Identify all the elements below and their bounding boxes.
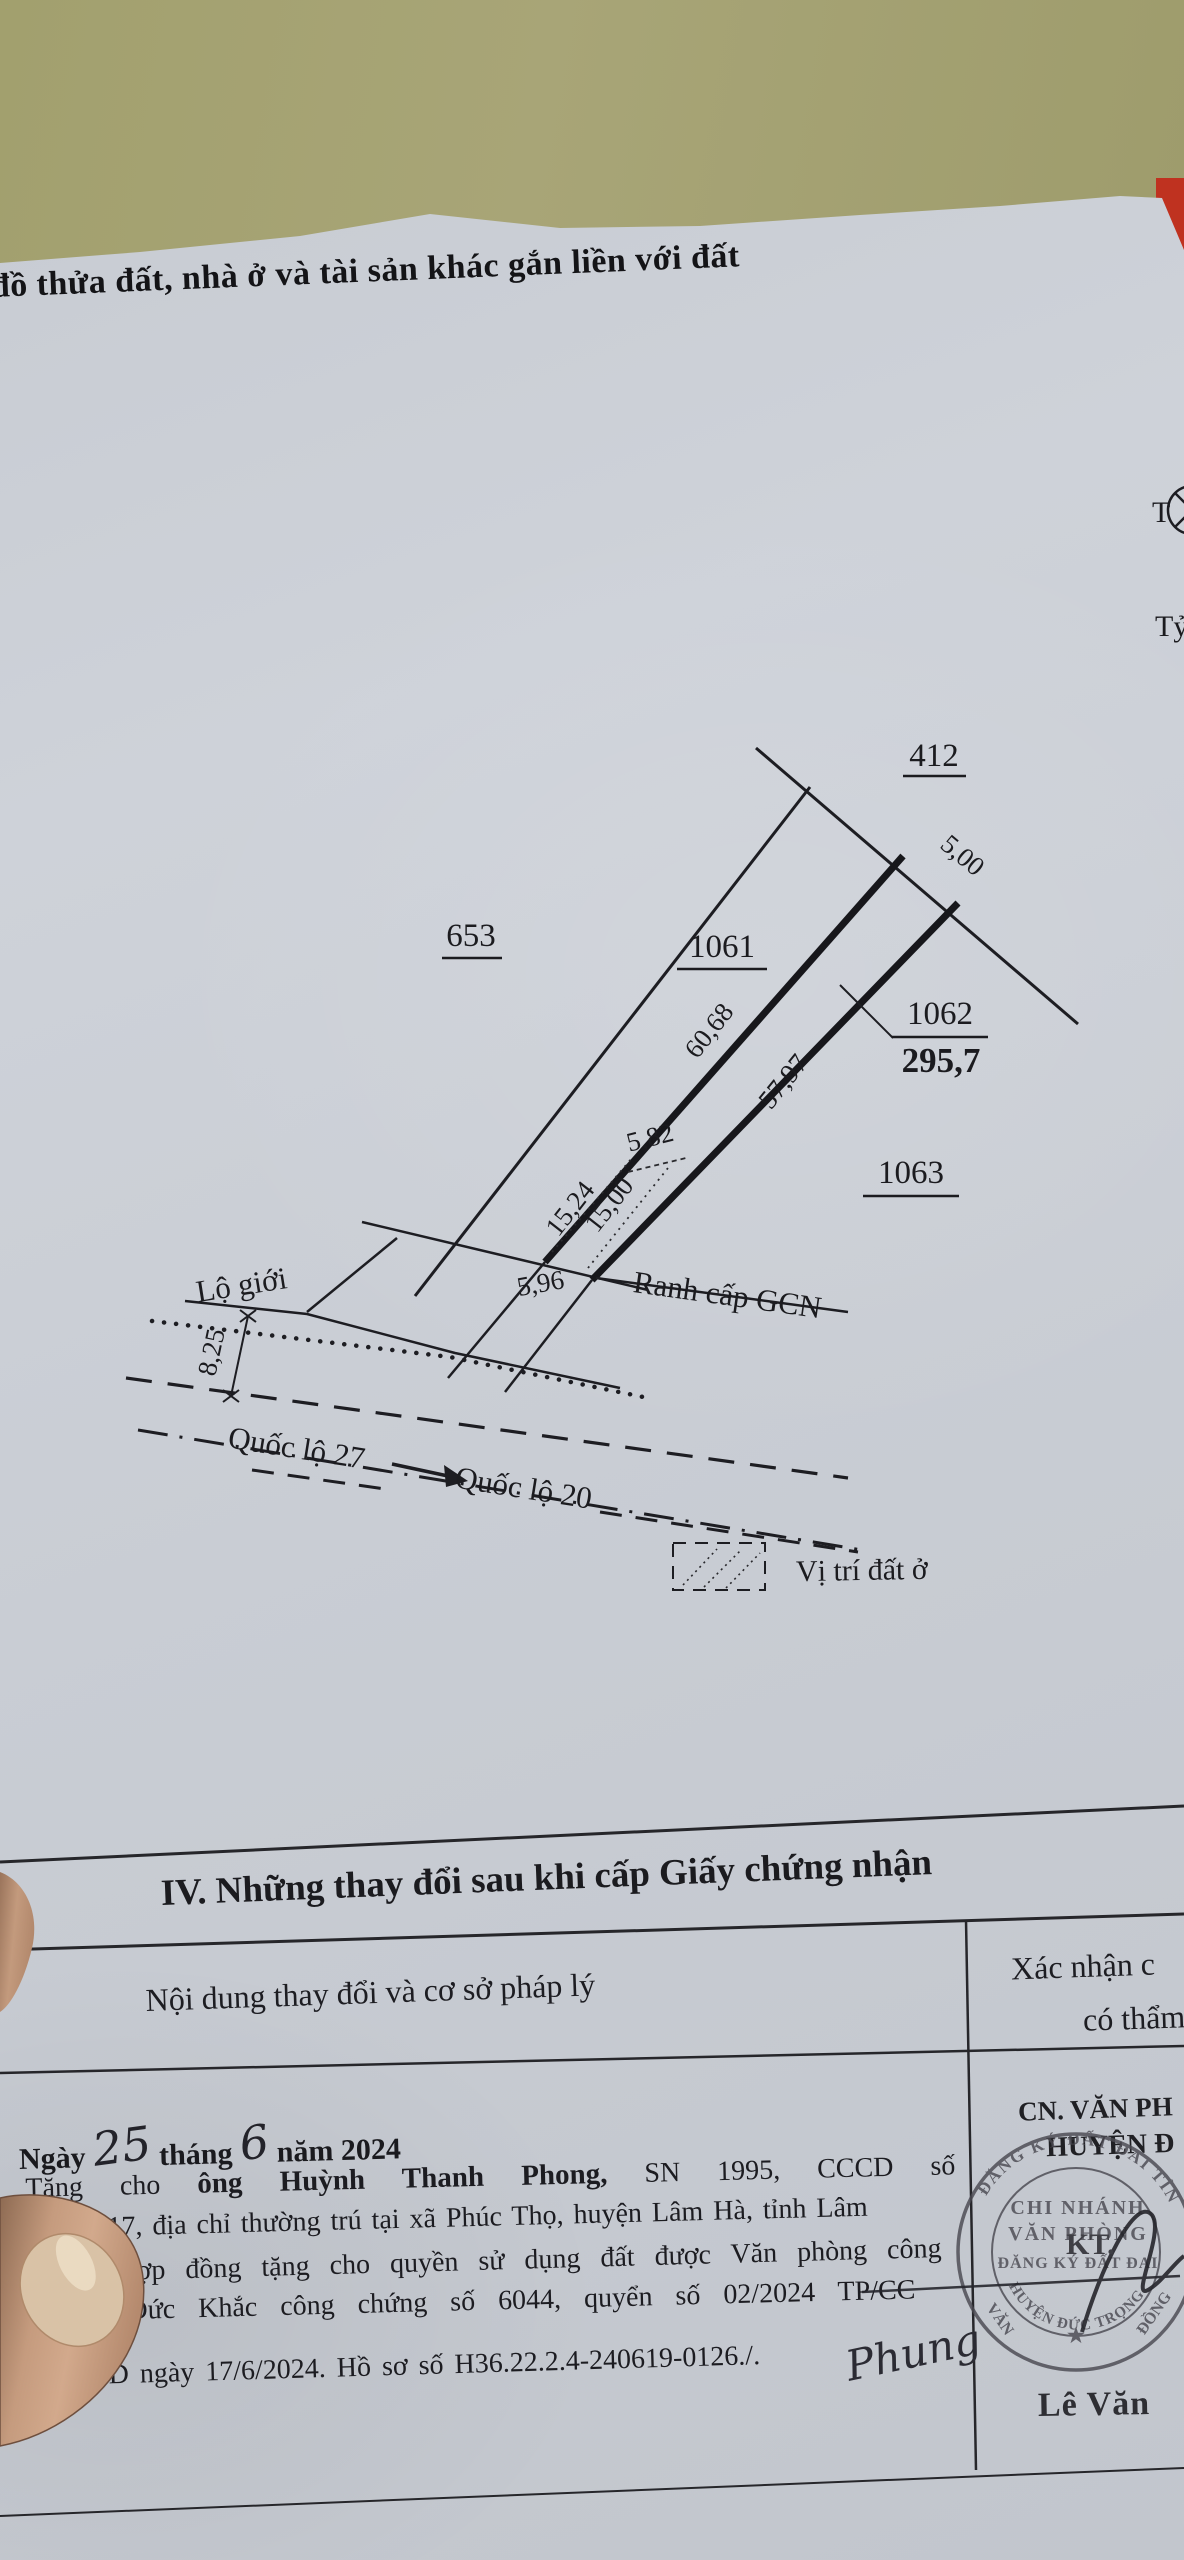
seal-line-chi-nhanh: CHI NHÁNH <box>1010 2196 1145 2219</box>
overlay-layer: ĐĂNG KÝ ĐẤT ĐAI TỈNH CHI NHÁNH VĂN PHÒNG… <box>0 0 1184 2560</box>
round-seal-stamp: ĐĂNG KÝ ĐẤT ĐAI TỈNH CHI NHÁNH VĂN PHÒNG… <box>0 0 1184 2370</box>
seal-arc-top-text: ĐĂNG KÝ ĐẤT ĐAI TỈNH <box>0 0 1184 2207</box>
seal-arc-top-textpath: ĐĂNG KÝ ĐẤT ĐAI TỈNH <box>0 0 1184 2207</box>
kt-abbreviation: KT. <box>1066 2228 1115 2262</box>
photo-of-land-certificate: { "scene": { "table_color": "#a5a272", "… <box>0 0 1184 2560</box>
finger-tip-upper <box>0 1872 34 2012</box>
finger <box>0 1872 144 2446</box>
